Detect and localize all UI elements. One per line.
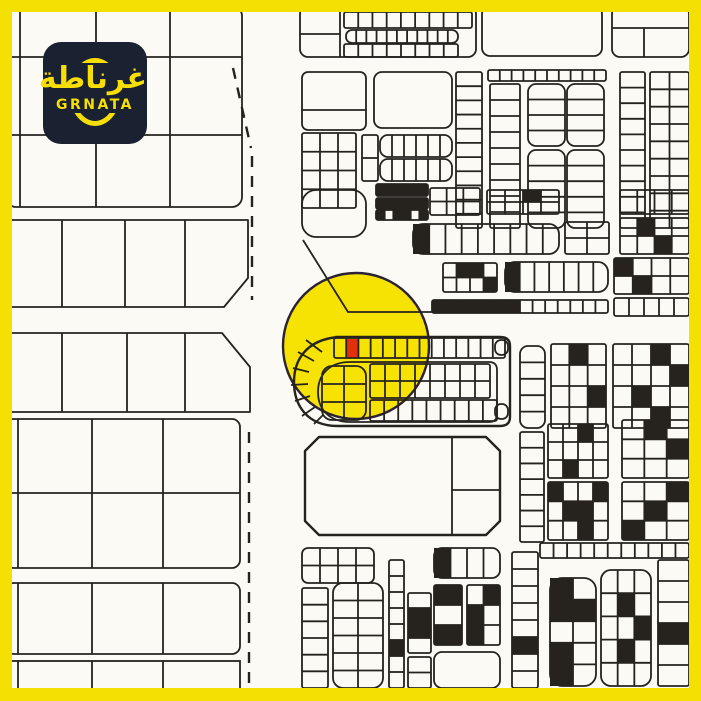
sold-plot-fill xyxy=(563,501,578,520)
sold-plot-fill xyxy=(402,210,411,220)
sold-plot-fill xyxy=(393,198,402,209)
sold-plot-fill xyxy=(484,585,501,605)
sold-plot-fill xyxy=(651,344,670,365)
sold-plot-fill xyxy=(393,210,402,220)
grnata-logo: غرناطة GRNATA xyxy=(43,42,147,144)
sold-plot-fill xyxy=(622,521,644,540)
sold-plot-fill xyxy=(495,300,508,313)
sold-plot-fill xyxy=(432,300,445,313)
sold-plot-fill xyxy=(445,300,458,313)
sold-plot-fill xyxy=(507,300,520,313)
frame-border xyxy=(0,0,701,12)
sold-plot-fill xyxy=(482,300,495,313)
sold-plot-fill xyxy=(655,236,672,254)
sold-plot-fill xyxy=(457,263,471,278)
sold-plot-fill xyxy=(550,600,573,622)
map-shape xyxy=(291,384,308,385)
sold-plot-fill xyxy=(411,184,420,196)
sold-plot-fill xyxy=(637,218,654,236)
sold-plot-fill xyxy=(457,300,470,313)
sold-plot-fill xyxy=(467,625,484,645)
grnata-map-post: غرناطة GRNATA xyxy=(0,0,701,701)
sold-plot-fill xyxy=(470,263,484,278)
sold-plot-fill xyxy=(614,258,633,276)
sold-plot-fill xyxy=(419,184,428,196)
sold-plot-fill xyxy=(618,640,635,663)
frame-border xyxy=(0,688,701,701)
sold-plot-fill xyxy=(467,605,484,625)
sold-plot-fill xyxy=(376,198,385,209)
sold-plot-fill xyxy=(408,623,431,638)
sold-plot-fill xyxy=(376,184,385,196)
sold-plot-fill xyxy=(548,482,563,501)
sold-plot-fill xyxy=(385,198,394,209)
sold-plot-fill xyxy=(578,501,593,520)
sold-plot-fill xyxy=(569,344,587,365)
sold-plot-fill xyxy=(618,593,635,616)
sold-plot-fill xyxy=(385,184,394,196)
logo-latin-text: GRNATA xyxy=(43,98,147,113)
sold-plot-fill xyxy=(658,623,689,644)
sold-plot-fill xyxy=(644,420,666,439)
sold-plot-fill xyxy=(667,482,689,501)
sold-plot-fill xyxy=(588,386,606,407)
sold-plot-fill xyxy=(411,198,420,209)
sold-plot-fill xyxy=(419,210,428,220)
sold-plot-fill xyxy=(593,482,608,501)
sold-plot-fill xyxy=(402,184,411,196)
sold-plot-fill xyxy=(434,585,462,605)
sold-plot-fill xyxy=(670,365,689,386)
sold-plot-fill xyxy=(402,198,411,209)
frame-border xyxy=(689,0,701,701)
selected-plot-marker xyxy=(347,339,359,358)
sold-plot-fill xyxy=(634,616,651,639)
logo-arabic-text: غرناطة xyxy=(43,61,147,97)
sold-plot-fill xyxy=(563,460,578,478)
sold-plot-fill xyxy=(419,198,428,209)
sold-plot-fill xyxy=(633,276,652,294)
sold-plot-fill xyxy=(376,210,385,220)
sold-plot-fill xyxy=(523,190,541,202)
sold-plot-fill xyxy=(408,608,431,623)
sold-plot-fill xyxy=(632,386,651,407)
sold-plot-fill xyxy=(484,278,498,293)
sold-plot-fill xyxy=(389,640,404,656)
sold-plot-fill xyxy=(644,501,666,520)
sold-plot-fill xyxy=(393,184,402,196)
sold-plot-fill xyxy=(578,424,593,442)
sold-plot-fill xyxy=(578,521,593,540)
sold-plot-fill xyxy=(434,548,451,578)
sold-plot-fill xyxy=(573,600,596,622)
sold-plot-fill xyxy=(512,637,538,654)
frame-border xyxy=(0,0,12,701)
sold-plot-fill xyxy=(550,643,573,665)
sold-plot-fill xyxy=(667,439,689,458)
sold-plot-fill xyxy=(470,300,483,313)
sold-plot-fill xyxy=(434,625,462,645)
